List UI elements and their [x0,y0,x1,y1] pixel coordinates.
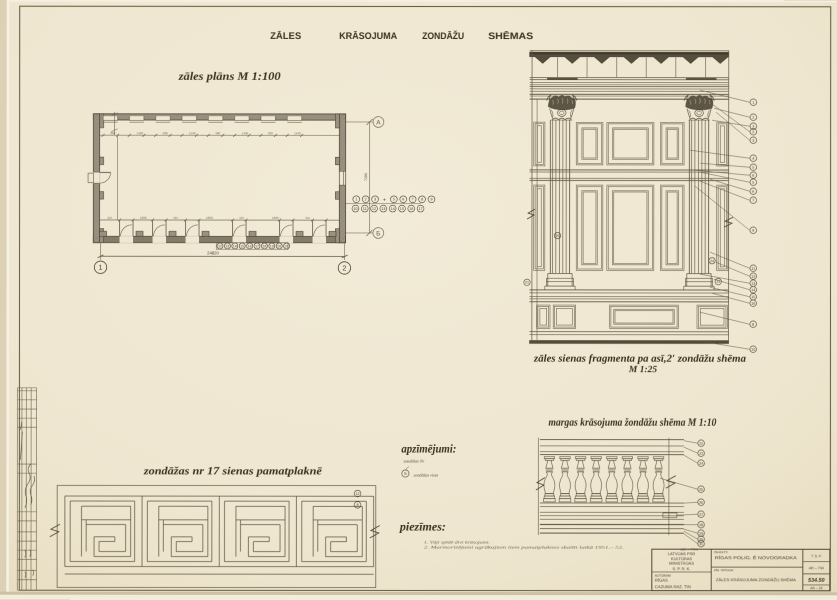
svg-text:20: 20 [277,244,281,248]
svg-text:10: 10 [751,348,755,352]
svg-text:A: A [376,119,381,126]
svg-text:14: 14 [391,207,395,211]
svg-text:KRĀSOJUMA: KRĀSOJUMA [339,31,397,42]
svg-text:14: 14 [751,288,755,292]
svg-text:13: 13 [751,282,755,286]
svg-text:24: 24 [710,259,714,263]
svg-text:980: 980 [163,131,168,135]
svg-text:7: 7 [752,199,754,203]
svg-text:15: 15 [400,207,404,211]
svg-text:ZONDĀŽU: ZONDĀŽU [422,30,464,42]
svg-text:16: 16 [751,302,755,306]
svg-text:24820: 24820 [207,250,219,255]
svg-text:RĪGAS: RĪGAS [655,578,668,583]
svg-text:6: 6 [402,198,404,202]
svg-text:apzīmējumi:: apzīmējumi: [401,441,456,455]
svg-text:415: 415 [173,216,178,220]
svg-text:18: 18 [263,244,267,248]
svg-text:415: 415 [107,216,112,220]
svg-text:1490: 1490 [189,131,196,135]
svg-text:14: 14 [233,244,237,248]
svg-text:29: 29 [699,531,703,535]
svg-text:zāles sienas fragmenta pa asī,: zāles sienas fragmenta pa asī,2′ zondāžu… [533,354,746,365]
svg-text:zondāžas vieta: zondāžas vieta [413,472,439,477]
svg-text:26: 26 [699,500,703,504]
svg-text:5: 5 [393,198,395,202]
svg-text:S. P. R. K.: S. P. R. K. [672,566,690,571]
svg-text:margas krāsojuma žondāžu shēma: margas krāsojuma žondāžu shēma M 1:10 [548,417,716,429]
svg-text:534.50: 534.50 [808,578,825,584]
svg-text:12: 12 [372,207,376,211]
svg-text:6: 6 [752,190,754,194]
svg-text:10: 10 [353,207,357,211]
svg-text:1: 1 [752,101,754,105]
svg-text:25: 25 [699,487,703,491]
svg-text:24: 24 [699,461,703,465]
svg-text:27: 27 [699,512,703,516]
svg-text:25: 25 [556,234,560,238]
svg-text:415: 415 [239,216,244,220]
svg-text:MINISTRIJAS: MINISTRIJAS [669,561,694,566]
svg-text:2. Marmorizējumi agrākajiem: 2. Marmorizējumi agrākajiem tiem pamatpl… [424,544,624,549]
svg-text:AR – 734: AR – 734 [809,566,824,570]
svg-text:11: 11 [751,267,755,271]
svg-text:15: 15 [751,295,755,299]
svg-text:12: 12 [356,492,360,496]
svg-text:12: 12 [218,244,222,248]
svg-text:13: 13 [226,244,230,248]
svg-text:zondāžas nr 17 sienas pamat: zondāžas nr 17 sienas pamatplaknē [143,465,322,477]
svg-text:16: 16 [409,207,413,211]
svg-text:1860: 1860 [272,216,279,220]
svg-text:7: 7 [412,198,414,202]
svg-text:2: 2 [365,198,367,202]
svg-text:2: 2 [752,130,754,134]
svg-text:1860: 1860 [140,216,147,220]
svg-text:15: 15 [240,244,244,248]
svg-text:4: 4 [752,157,754,161]
svg-text:980: 980 [268,131,273,135]
svg-text:2: 2 [342,264,346,273]
svg-text:9: 9 [752,229,754,233]
svg-text:AR – 20: AR – 20 [810,586,822,590]
svg-text:8: 8 [357,503,359,507]
svg-text:2: 2 [752,116,754,120]
svg-text:21: 21 [285,244,289,248]
svg-text:17: 17 [418,207,422,211]
svg-text:5: 5 [752,166,754,170]
svg-text:CAZUMA RAZ. TIN: CAZUMA RAZ. TIN [655,584,691,589]
svg-text:T. S. P.: T. S. P. [811,554,822,558]
svg-text:28: 28 [699,523,703,527]
svg-text:Б: Б [376,230,380,237]
svg-text:13: 13 [381,207,385,211]
svg-text:3: 3 [752,139,754,143]
svg-text:+: + [383,197,386,203]
svg-text:17: 17 [255,244,259,248]
svg-text:9: 9 [430,198,432,202]
svg-text:16: 16 [248,244,252,248]
svg-text:1490: 1490 [136,131,143,135]
svg-text:RĪGAS POLIG. Ē NOVOGRADKA: RĪGAS POLIG. Ē NOVOGRADKA [715,555,797,560]
svg-text:23: 23 [699,451,703,455]
svg-text:ZĀLES KRĀSOJUMA ZONDĀŽU SHĒ: ZĀLES KRĀSOJUMA ZONDĀŽU SHĒMA [716,577,796,582]
svg-text:8: 8 [752,323,754,327]
svg-text:M 1:25: M 1:25 [628,365,657,375]
svg-text:ZĪM. NOSAUK:: ZĪM. NOSAUK: [714,568,735,572]
svg-text:6: 6 [752,174,754,178]
svg-text:31: 31 [699,542,703,546]
svg-text:3: 3 [752,125,754,129]
svg-text:1860: 1860 [206,216,213,220]
svg-text:3: 3 [374,198,376,202]
svg-text:5: 5 [752,181,754,185]
svg-text:415: 415 [305,216,310,220]
svg-text:11: 11 [363,207,367,211]
svg-text:19: 19 [270,244,274,248]
svg-text:7280: 7280 [364,173,368,181]
svg-text:zondāžas Nr: zondāžas Nr [402,458,424,463]
svg-text:ZĀLES: ZĀLES [270,31,301,42]
svg-text:OBJEKTS:: OBJEKTS: [714,550,729,554]
svg-text:980: 980 [215,131,220,135]
svg-text:1: 1 [355,198,357,202]
svg-text:8: 8 [421,198,423,202]
svg-text:1490: 1490 [294,132,301,136]
svg-text:21: 21 [525,281,529,285]
svg-text:22: 22 [699,441,703,445]
svg-text:12: 12 [751,275,755,279]
svg-text:SHĒMAS: SHĒMAS [488,31,533,42]
svg-text:piezīmes:: piezīmes: [399,519,446,533]
svg-text:1: 1 [99,263,103,272]
svg-text:zāles plāns M 1:100: zāles plāns M 1:100 [178,71,281,83]
svg-text:1490: 1490 [242,131,249,135]
